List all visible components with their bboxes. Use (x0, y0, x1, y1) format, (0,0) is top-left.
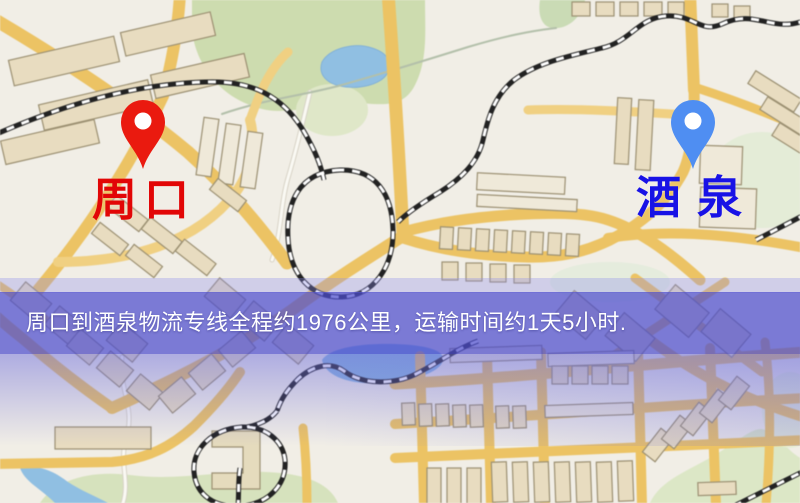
origin-pin-icon[interactable] (119, 99, 167, 171)
logistics-route-map: 周口 酒泉 周口到酒泉物流专线全程约1976公里，运输时间约1天5小时. (0, 0, 800, 503)
banner-fade (0, 354, 800, 446)
route-info-text: 周口到酒泉物流专线全程约1976公里，运输时间约1天5小时. (26, 310, 627, 335)
route-info-banner: 周口到酒泉物流专线全程约1976公里，运输时间约1天5小时. (0, 292, 800, 354)
destination-city-label: 酒泉 (636, 175, 758, 220)
banner-glow (0, 278, 800, 293)
origin-city-label: 周口 (92, 177, 196, 222)
destination-pin-icon[interactable] (669, 99, 717, 171)
